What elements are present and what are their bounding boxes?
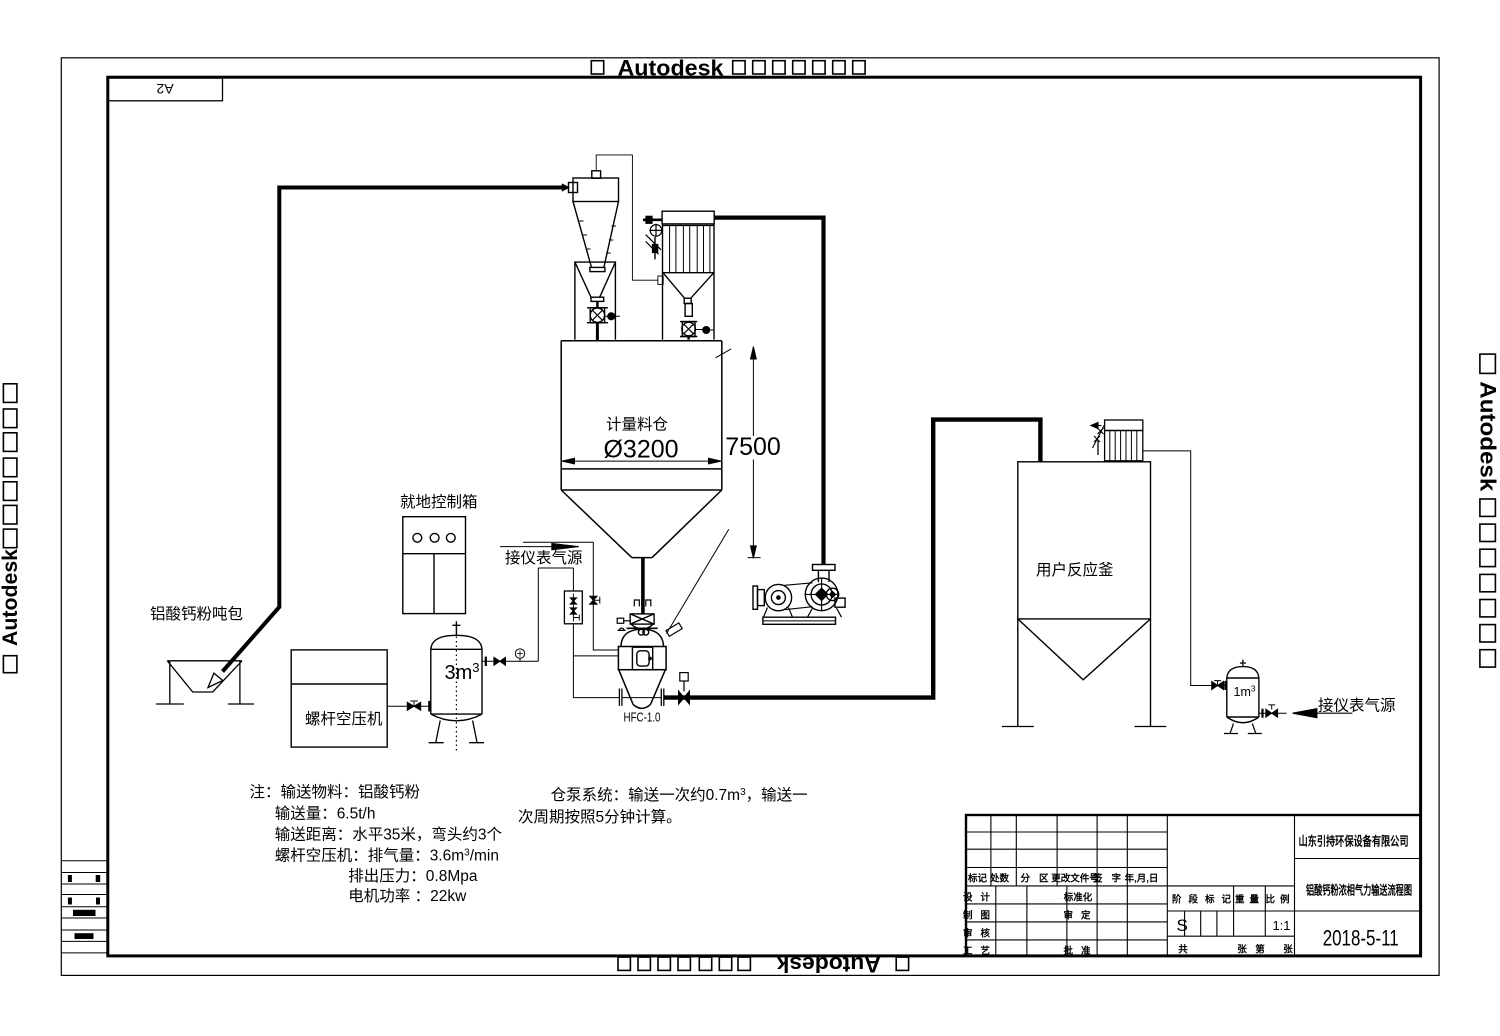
svg-text:Ø3200: Ø3200: [603, 436, 678, 464]
svg-text:铝酸钙粉浓相气力输送流程图: 铝酸钙粉浓相气力输送流程图: [1306, 883, 1412, 898]
svg-text:铝酸钙粉吨包: 铝酸钙粉吨包: [150, 605, 243, 623]
svg-text:制图: 制图: [963, 910, 998, 922]
svg-text:Autodesk: Autodesk: [776, 952, 881, 977]
svg-text:用户反应釜: 用户反应釜: [1036, 560, 1114, 579]
svg-text:Autodesk: Autodesk: [618, 55, 725, 80]
svg-text:审定: 审定: [1063, 910, 1098, 922]
svg-text:Autodesk: Autodesk: [1476, 381, 1500, 492]
svg-text:年,月,日: 年,月,日: [1125, 873, 1159, 885]
svg-text:计量料仓: 计量料仓: [606, 416, 669, 434]
svg-text:共: 共: [1178, 944, 1188, 956]
svg-text:输送量：6.5t/h: 输送量：6.5t/h: [275, 805, 376, 823]
svg-text:A2: A2: [156, 81, 173, 97]
svg-text:审核: 审核: [963, 928, 998, 940]
svg-text:标记: 标记: [967, 873, 988, 885]
svg-text:螺杆空压机: 螺杆空压机: [305, 710, 383, 728]
svg-text:1m3: 1m3: [1234, 684, 1256, 700]
svg-text:处数: 处数: [989, 873, 1010, 885]
svg-text:比例: 比例: [1265, 894, 1294, 906]
svg-text:第: 第: [1255, 944, 1265, 956]
svg-text:HFC-1.0: HFC-1.0: [624, 710, 661, 725]
svg-text:重量: 重量: [1235, 894, 1264, 906]
svg-text:螺杆空压机：排气量：3.6m3/min: 螺杆空压机：排气量：3.6m3/min: [275, 847, 499, 865]
svg-text:就地控制箱: 就地控制箱: [400, 493, 478, 511]
svg-text:3m3: 3m3: [445, 660, 480, 684]
svg-text:标准化: 标准化: [1063, 892, 1093, 904]
svg-text:接仪表气源: 接仪表气源: [505, 549, 583, 567]
svg-text:7500: 7500: [725, 433, 781, 461]
svg-text:次周期按照5分钟计算。: 次周期按照5分钟计算。: [518, 807, 682, 826]
svg-text:阶段标记: 阶段标记: [1172, 894, 1238, 906]
svg-text:张: 张: [1283, 944, 1293, 956]
svg-text:山东引持环保设备有限公司: 山东引持环保设备有限公司: [1299, 834, 1409, 849]
svg-text:S: S: [1177, 916, 1188, 935]
svg-text:2018-5-11: 2018-5-11: [1323, 926, 1399, 951]
svg-text:工艺: 工艺: [963, 945, 998, 957]
svg-text:张: 张: [1237, 944, 1247, 956]
svg-text:接仪表气源: 接仪表气源: [1318, 697, 1396, 715]
svg-text:批准: 批准: [1063, 945, 1098, 957]
svg-text:排出压力：0.8Mpa: 排出压力：0.8Mpa: [348, 867, 478, 885]
svg-text:仓泵系统：输送一次约0.7m3，输送一: 仓泵系统：输送一次约0.7m3，输送一: [551, 786, 808, 804]
svg-text:1:1: 1:1: [1272, 918, 1290, 933]
svg-text:Autodesk: Autodesk: [0, 549, 22, 646]
svg-text:注：输送物料：铝酸钙粉: 注：输送物料：铝酸钙粉: [250, 783, 421, 801]
svg-text:设计: 设计: [963, 892, 998, 904]
svg-text:电机功率 ：22kw: 电机功率 ：22kw: [348, 887, 467, 905]
svg-text:输送距离：水平35米，弯头约3个: 输送距离：水平35米，弯头约3个: [275, 826, 503, 844]
